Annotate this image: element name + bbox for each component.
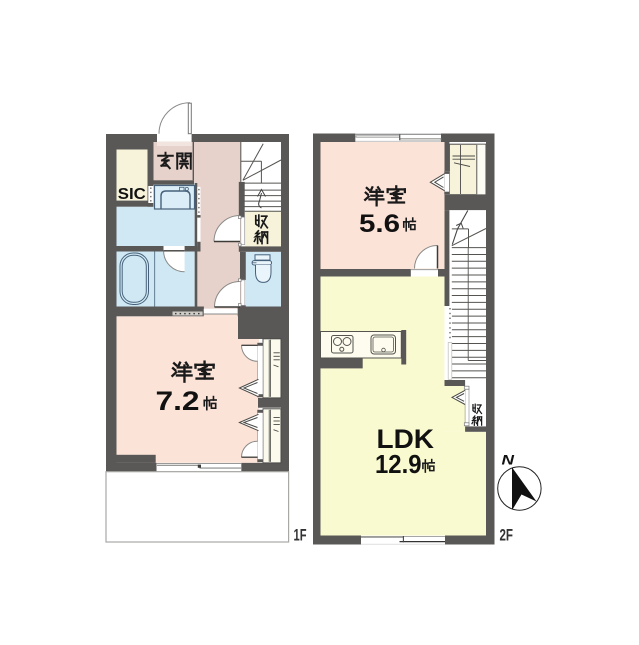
svg-text:SIC: SIC — [118, 186, 146, 203]
svg-text:1F: 1F — [294, 527, 307, 545]
svg-text:5.6: 5.6 — [359, 210, 400, 238]
svg-text:7.2: 7.2 — [156, 386, 200, 416]
svg-text:12.9: 12.9 — [375, 449, 422, 479]
svg-text:2F: 2F — [500, 527, 514, 545]
svg-text:N: N — [502, 452, 516, 468]
